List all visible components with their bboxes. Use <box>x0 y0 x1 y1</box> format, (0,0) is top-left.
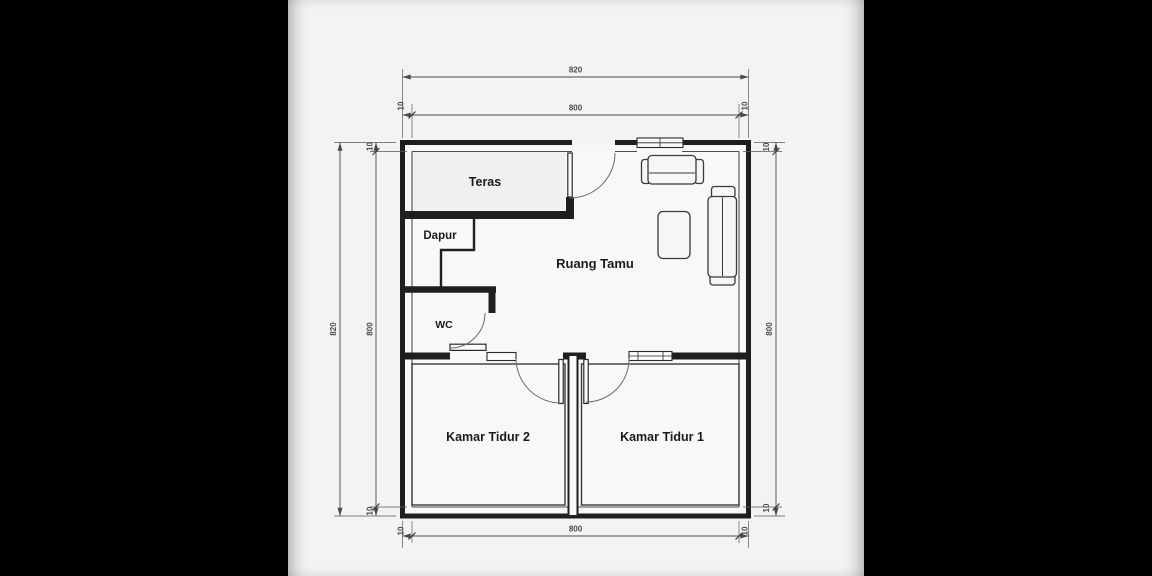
room-label-teras: Teras <box>469 175 501 189</box>
dim-offset-right-top: 10 <box>762 142 771 151</box>
room-label-dapur: Dapur <box>423 230 457 242</box>
dim-offset-top-left: 10 <box>397 101 406 110</box>
dim-right-inner-label: 800 <box>765 322 774 336</box>
dim-left-overall-label: 820 <box>329 322 338 336</box>
dim-bottom-label: 800 <box>569 525 583 534</box>
dim-offset-right-bottom: 10 <box>762 503 771 512</box>
room-label-kamar-tidur-2: Kamar Tidur 2 <box>446 430 530 444</box>
dim-left-inner-label: 800 <box>366 322 375 336</box>
dim-offset-left-top: 10 <box>366 142 375 151</box>
floor-plan-svg: Teras Dapur WC Ruang Tamu Kamar Tidur 2 … <box>288 0 864 576</box>
letterbox-left <box>0 0 288 576</box>
dim-top-inner-label: 800 <box>569 104 583 113</box>
coffee-table <box>658 212 690 259</box>
dim-offset-bottom-left: 10 <box>397 526 406 535</box>
screenshot: Teras Dapur WC Ruang Tamu Kamar Tidur 2 … <box>0 0 1152 576</box>
room-label-wc: WC <box>435 319 453 331</box>
sofa-horizontal <box>642 156 704 185</box>
dim-offset-top-right: 10 <box>741 101 750 110</box>
sill-wc-bedroom-wall <box>487 353 516 361</box>
room-label-ruang-tamu: Ruang Tamu <box>556 256 634 271</box>
sofa-body <box>648 156 696 185</box>
dim-offset-bottom-right: 10 <box>741 526 750 535</box>
dim-top-overall-label: 820 <box>569 66 583 75</box>
bedroom-divider-wall <box>569 355 578 516</box>
floor-plan: Teras Dapur WC Ruang Tamu Kamar Tidur 2 … <box>400 138 751 519</box>
door-leaf <box>584 360 588 404</box>
sofa-vertical <box>708 187 737 286</box>
dimension-top: 820 800 10 10 <box>397 66 750 139</box>
dimension-left: 820 800 10 10 <box>329 142 407 516</box>
door-leaf <box>568 153 572 197</box>
room-label-kamar-tidur-1: Kamar Tidur 1 <box>620 430 704 444</box>
letterbox-right <box>864 0 1152 576</box>
dimension-bottom: 800 10 10 <box>397 521 750 548</box>
dim-offset-left-bottom: 10 <box>366 506 375 515</box>
window-bedroom-wall <box>629 352 672 361</box>
window-top-wall <box>637 138 683 148</box>
door-leaf <box>559 360 563 404</box>
floorplan-canvas: Teras Dapur WC Ruang Tamu Kamar Tidur 2 … <box>288 0 864 576</box>
